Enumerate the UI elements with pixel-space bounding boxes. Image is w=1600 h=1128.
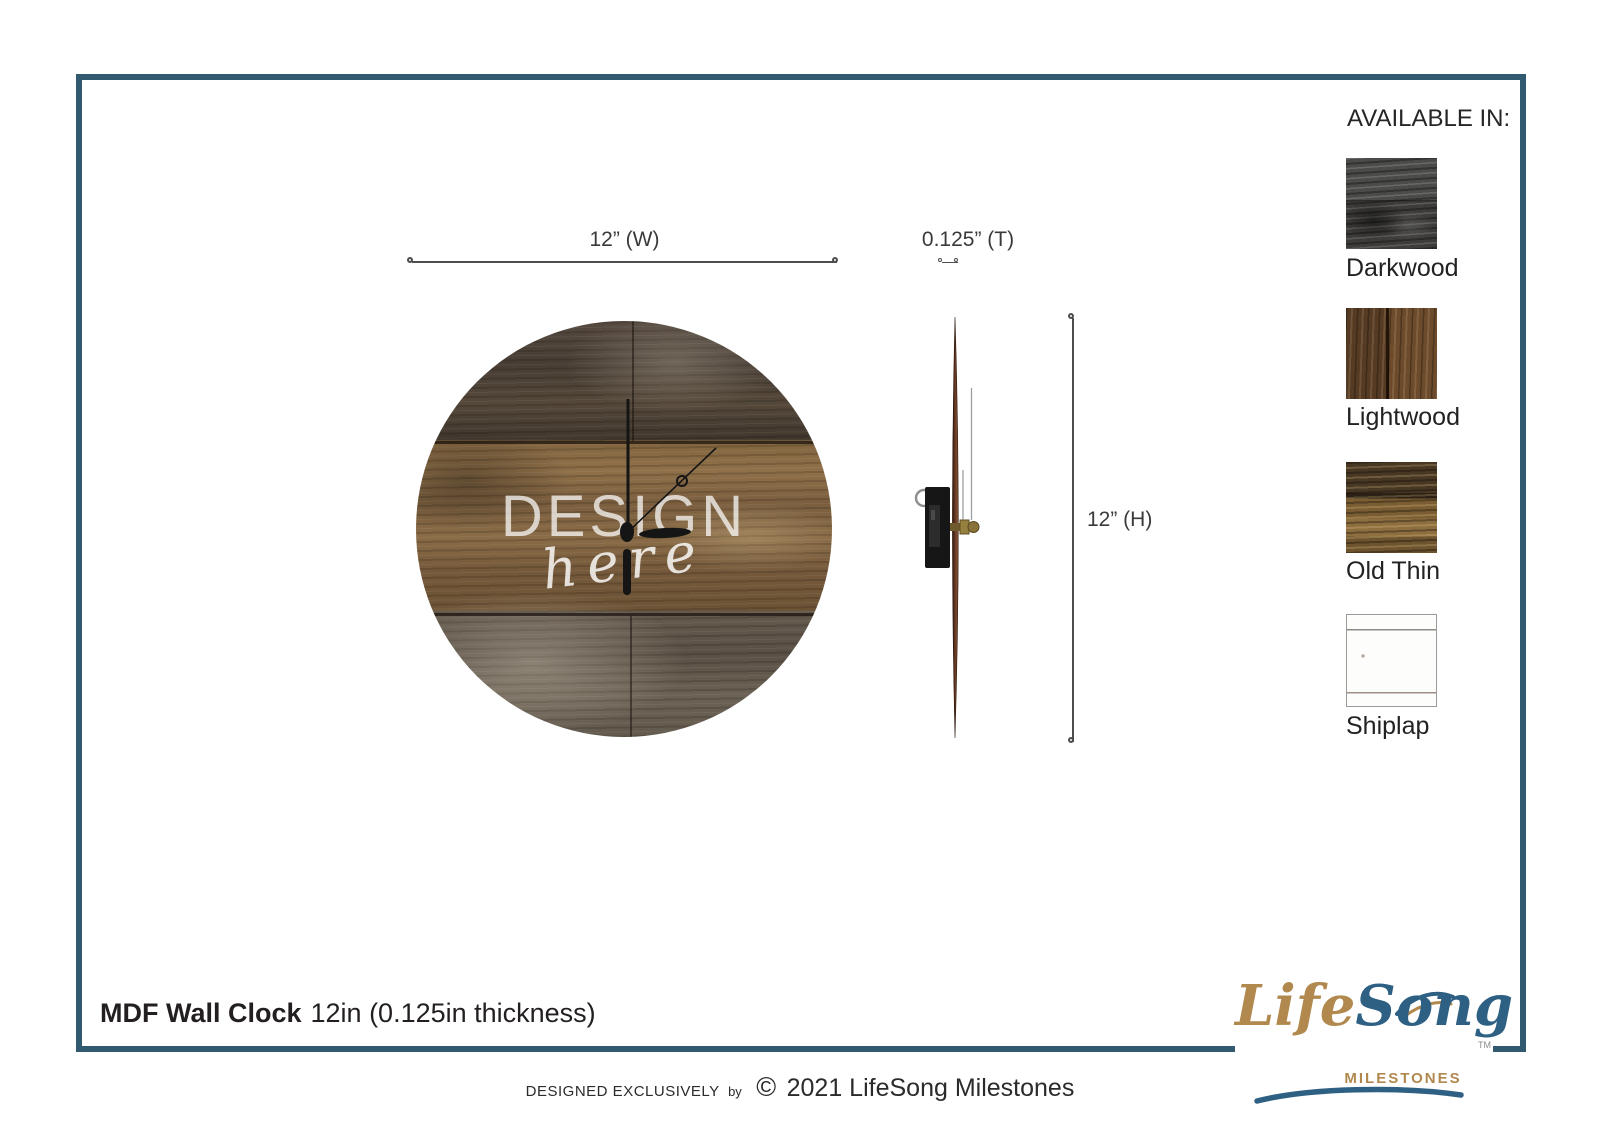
logo-song-text: Song	[1355, 973, 1513, 1039]
dimension-endpoint-circle	[954, 258, 958, 262]
available-in-heading: AVAILABLE IN:	[1347, 105, 1510, 133]
dimension-endpoint-circle	[832, 257, 838, 263]
clock-face-front-view: DESIGN here	[416, 321, 832, 737]
thickness-dimension-label: 0.125” (T)	[880, 228, 1056, 252]
width-dimension-label: 12” (W)	[412, 228, 837, 252]
swatch-shiplap	[1346, 614, 1437, 707]
product-spec: 12in (0.125in thickness)	[311, 998, 596, 1028]
swatch-label-shiplap: Shiplap	[1346, 712, 1429, 741]
trademark-symbol: TM	[1478, 1040, 1491, 1050]
swatch-darkwood	[1346, 158, 1437, 249]
logo-wordmark: LifeSong	[1235, 960, 1493, 1052]
clock-shaft	[950, 523, 961, 531]
dimension-endpoint-circle	[407, 257, 413, 263]
copyright-text: 2021 LifeSong Milestones	[787, 1074, 1075, 1102]
clock-hands	[416, 321, 832, 737]
dimension-endpoint-circle	[938, 258, 942, 262]
swatch-label-lightwood: Lightwood	[1346, 403, 1460, 432]
copyright-symbol: ©	[756, 1072, 776, 1102]
logo-underline-swoosh-icon	[1249, 1084, 1471, 1110]
logo-life-text: Life	[1235, 973, 1355, 1039]
swatch-oldthin	[1346, 462, 1437, 553]
designed-exclusively-text: DESIGNED EXCLUSIVELY	[526, 1083, 720, 1100]
width-dimension-line	[412, 261, 837, 263]
swatch-lightwood	[1346, 308, 1437, 399]
product-sheet: 12” (W) 0.125” (T) 12” (H) DESIGN here	[0, 0, 1600, 1128]
swatch-label-oldthin: Old Thin	[1346, 557, 1440, 586]
product-title: MDF Wall Clock12in (0.125in thickness)	[100, 998, 596, 1029]
clock-side-view	[900, 300, 1100, 760]
swatch-label-darkwood: Darkwood	[1346, 254, 1459, 283]
lifesong-logo: LifeSong TM MILESTONES	[1235, 958, 1493, 1116]
product-name: MDF Wall Clock	[100, 998, 302, 1028]
by-text: by	[728, 1084, 742, 1099]
